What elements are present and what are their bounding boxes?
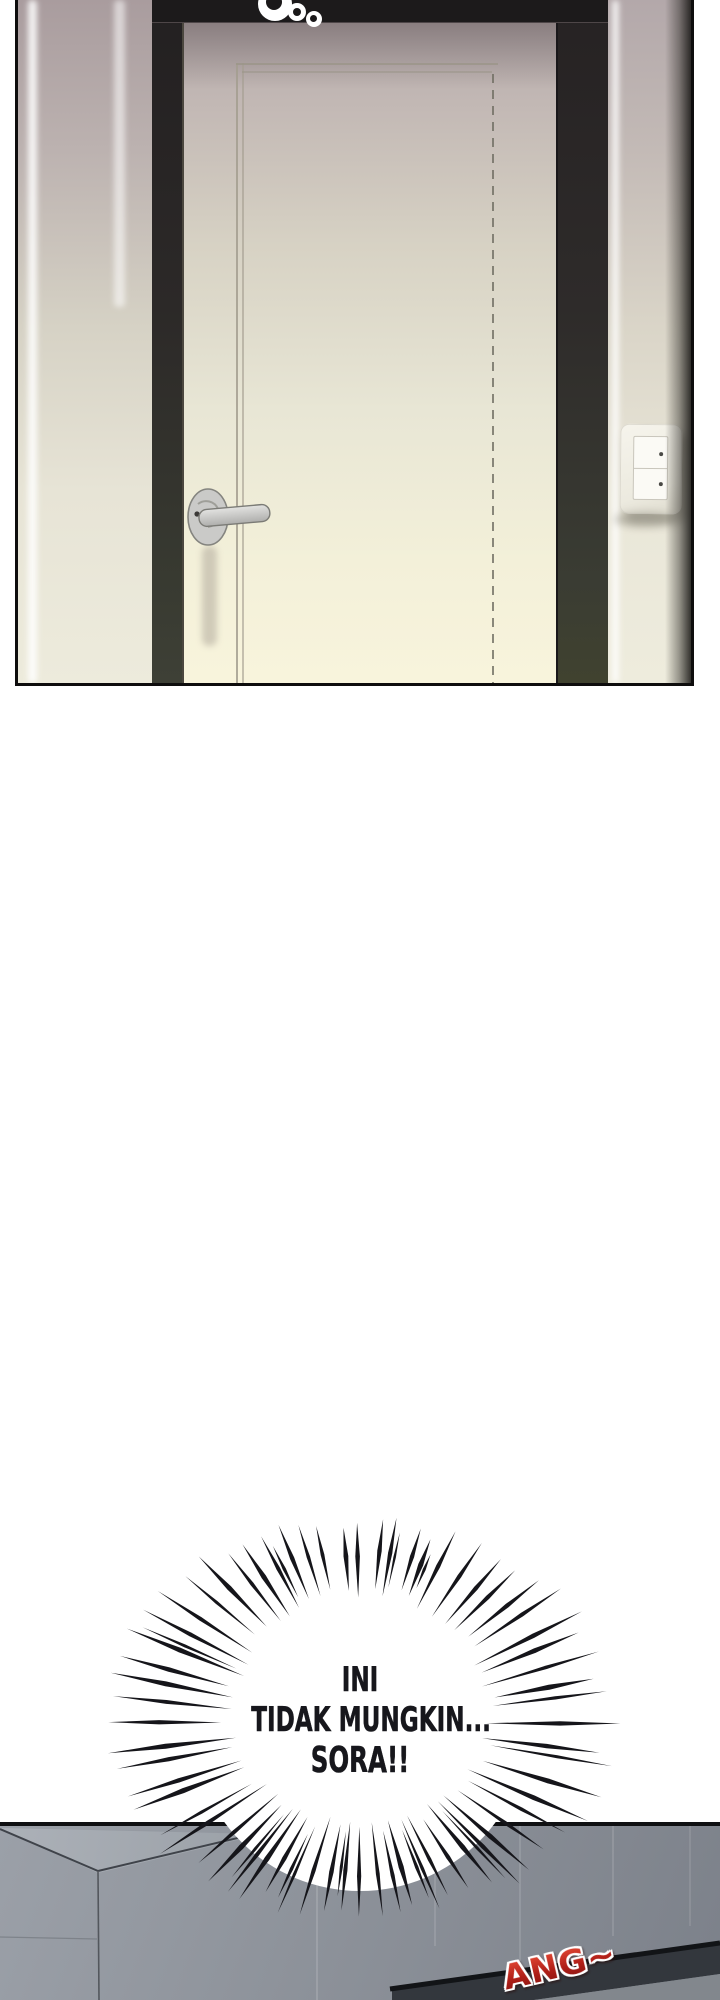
ring-hole bbox=[293, 8, 301, 16]
switch-indicator-dot bbox=[659, 482, 663, 486]
shout-burst-text: INI TIDAK MUNGKIN... SORA!! bbox=[251, 1660, 469, 1782]
door-frame-left bbox=[152, 0, 184, 683]
corner-edge bbox=[0, 1829, 98, 1871]
door-top-shadow bbox=[184, 23, 556, 89]
sound-rings-icon bbox=[306, 11, 322, 27]
comic-page: ANG~ INI TIDAK MUNGKIN... SORA!! bbox=[0, 0, 720, 2000]
wall-highlight bbox=[612, 0, 619, 683]
door bbox=[184, 0, 556, 683]
light-switch-rockers bbox=[633, 436, 669, 500]
right-wall bbox=[608, 0, 691, 683]
switch-divider bbox=[634, 468, 667, 469]
ring-hole bbox=[310, 15, 317, 22]
burst-text-line: INI bbox=[251, 1660, 469, 1700]
handle-shadow bbox=[202, 546, 217, 646]
wall-highlight bbox=[114, 0, 125, 307]
door-panel-line-dashed bbox=[492, 74, 494, 683]
burst-text-line: TIDAK MUNGKIN... bbox=[251, 1700, 469, 1740]
door-panel bbox=[15, 0, 694, 686]
door-panel-line bbox=[236, 63, 498, 65]
door-lintel bbox=[152, 0, 608, 23]
switch-indicator-dot bbox=[659, 452, 663, 456]
door-frame-right bbox=[556, 0, 608, 683]
switch-shadow bbox=[614, 512, 674, 527]
door-handle bbox=[184, 486, 280, 666]
left-wall bbox=[18, 0, 160, 683]
sound-rings-icon bbox=[288, 3, 306, 21]
ring-hole bbox=[266, 0, 282, 10]
door-panel-line bbox=[242, 71, 492, 73]
wall-seam bbox=[0, 1937, 97, 1939]
light-switch bbox=[620, 424, 683, 515]
burst-text-line: SORA!! bbox=[251, 1740, 469, 1782]
wall-highlight bbox=[28, 0, 37, 683]
